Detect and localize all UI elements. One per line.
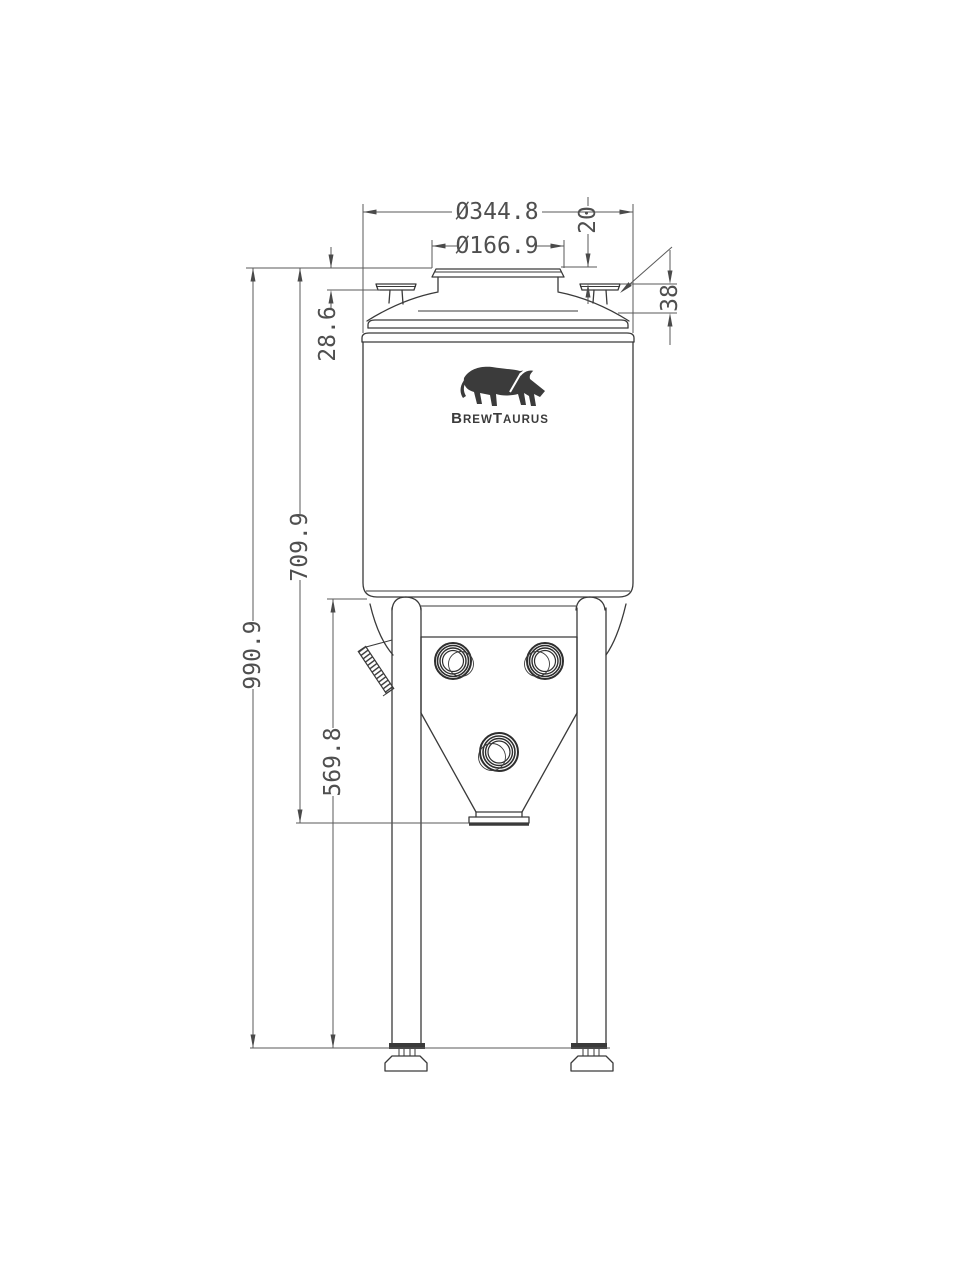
dim-top-to-cone-outlet-label: 709.9 bbox=[287, 512, 313, 581]
left-leg-bracket bbox=[392, 597, 421, 610]
dim-opening-diameter-label: Ø166.9 bbox=[455, 233, 538, 259]
dim-lid-to-port-flange-label: 28.6 bbox=[315, 306, 341, 361]
fermenter-technical-drawing-page: BREWTAURUS Ø344.8 Ø166.9 bbox=[0, 0, 960, 1280]
right-foot-pad bbox=[571, 1056, 613, 1071]
rim-ring-upper bbox=[368, 320, 628, 328]
dim-overall-diameter-label: Ø344.8 bbox=[455, 199, 538, 225]
lid-flange bbox=[432, 269, 564, 277]
brand-logo: BREWTAURUS bbox=[451, 367, 549, 427]
angled-port-clamp bbox=[358, 647, 393, 694]
middle-port bbox=[479, 733, 519, 771]
dim-opening-diameter: Ø166.9 bbox=[432, 233, 564, 259]
dim-total-height: 990.9 bbox=[240, 268, 266, 1048]
cone-and-stand bbox=[358, 597, 626, 1071]
technical-drawing-canvas: BREWTAURUS Ø344.8 Ø166.9 bbox=[0, 0, 960, 1280]
dim-port-flange-height: 38 bbox=[618, 247, 683, 345]
brand-name: BREWTAURUS bbox=[451, 410, 549, 427]
vessel-outline bbox=[362, 269, 634, 597]
cone-edge-left bbox=[370, 604, 393, 655]
dim-neck-to-port-top-label: 20 bbox=[575, 206, 601, 234]
bull-icon bbox=[461, 367, 545, 406]
rim-ring-lower bbox=[362, 333, 634, 342]
dim-lid-to-port-flange: 28.6 bbox=[315, 247, 341, 362]
dim-cone-top-to-ground-label: 569.8 bbox=[320, 727, 346, 796]
dim-neck-to-port-top: 20 bbox=[575, 197, 601, 304]
right-dome-port bbox=[580, 284, 620, 304]
upper-right-port bbox=[525, 643, 564, 679]
dimension-annotations: Ø344.8 Ø166.9 20 28.6 bbox=[240, 197, 683, 1048]
bottom-outlet-flange bbox=[469, 817, 529, 823]
adjustable-feet bbox=[385, 1043, 613, 1071]
dim-port-flange-height-label: 38 bbox=[657, 284, 683, 312]
dim-total-height-label: 990.9 bbox=[240, 620, 266, 689]
cone-edge-right bbox=[606, 604, 626, 655]
upper-left-port bbox=[435, 643, 474, 679]
stand-legs bbox=[392, 597, 606, 1044]
right-leg-bracket bbox=[576, 597, 605, 610]
left-foot-pad bbox=[385, 1056, 427, 1071]
dim-top-to-cone-outlet: 709.9 bbox=[287, 268, 313, 823]
left-dome-port bbox=[376, 284, 416, 304]
